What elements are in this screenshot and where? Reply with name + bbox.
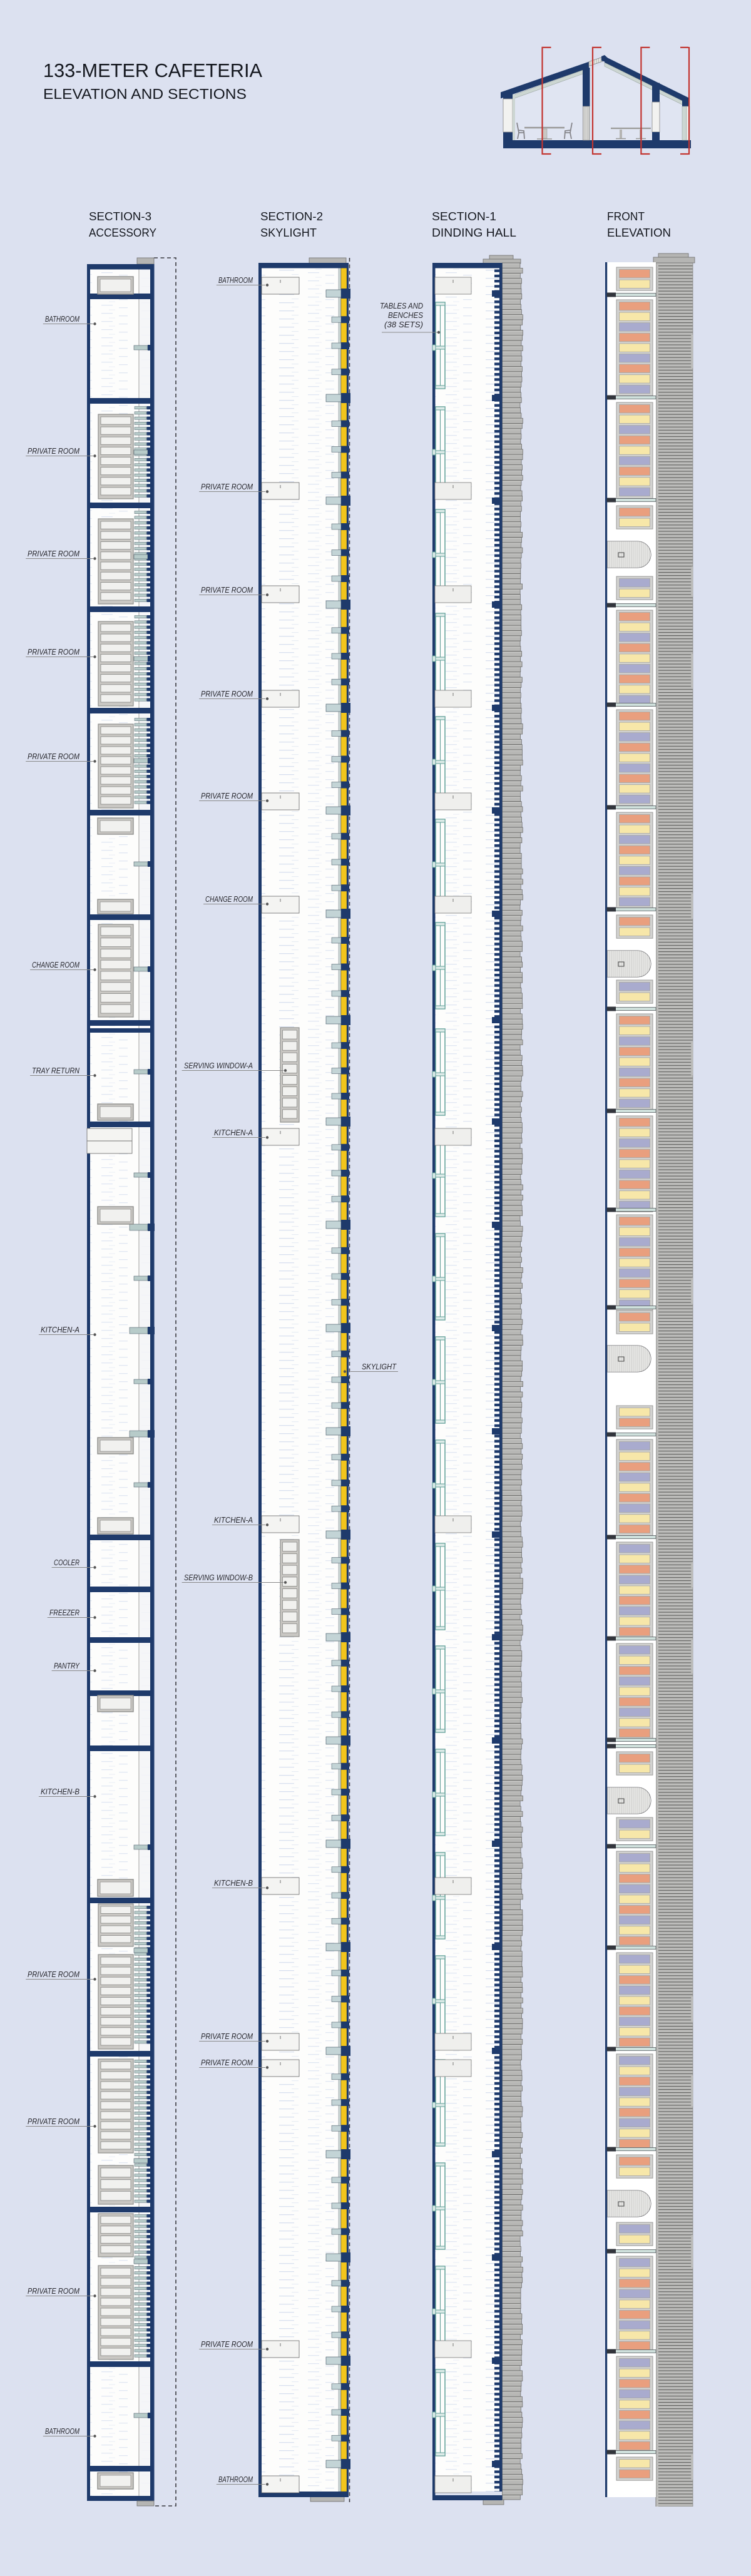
svg-text:PRIVATE ROOM: PRIVATE ROOM — [201, 791, 253, 800]
svg-text:TRAY RETURN: TRAY RETURN — [32, 1066, 80, 1075]
svg-text:CHANGE ROOM: CHANGE ROOM — [32, 960, 79, 969]
svg-text:ELEVATION AND SECTIONS: ELEVATION AND SECTIONS — [43, 86, 247, 102]
svg-text:PRIVATE ROOM: PRIVATE ROOM — [28, 647, 79, 657]
svg-text:SERVING WINDOW-B: SERVING WINDOW-B — [184, 1573, 253, 1582]
svg-text:BENCHES: BENCHES — [388, 310, 423, 320]
svg-text:PRIVATE ROOM: PRIVATE ROOM — [201, 2058, 253, 2067]
svg-text:(38 SETS): (38 SETS) — [384, 320, 423, 329]
svg-text:PRIVATE ROOM: PRIVATE ROOM — [201, 689, 253, 698]
svg-text:PRIVATE ROOM: PRIVATE ROOM — [201, 482, 253, 491]
svg-text:ELEVATION: ELEVATION — [607, 226, 671, 239]
svg-text:PRIVATE ROOM: PRIVATE ROOM — [201, 2339, 253, 2349]
svg-text:SECTION-3: SECTION-3 — [89, 210, 151, 223]
svg-text:KITCHEN-B: KITCHEN-B — [41, 1787, 79, 1796]
svg-text:133-METER CAFETERIA: 133-METER CAFETERIA — [43, 59, 262, 81]
svg-text:SERVING WINDOW-A: SERVING WINDOW-A — [184, 1061, 253, 1070]
svg-text:DINDING HALL: DINDING HALL — [432, 226, 516, 239]
svg-text:PRIVATE ROOM: PRIVATE ROOM — [201, 2032, 253, 2041]
svg-text:SKYLIGHT: SKYLIGHT — [260, 226, 317, 239]
svg-text:PRIVATE ROOM: PRIVATE ROOM — [28, 2286, 79, 2296]
svg-text:FREEZER: FREEZER — [49, 1608, 79, 1617]
svg-text:FRONT: FRONT — [607, 210, 645, 223]
svg-text:PRIVATE ROOM: PRIVATE ROOM — [28, 446, 79, 456]
svg-text:SECTION-2: SECTION-2 — [260, 210, 323, 223]
svg-text:BATHROOM: BATHROOM — [45, 2426, 79, 2436]
svg-text:BATHROOM: BATHROOM — [218, 275, 253, 285]
svg-text:KITCHEN-A: KITCHEN-A — [41, 1325, 79, 1334]
svg-text:KITCHEN-A: KITCHEN-A — [214, 1128, 253, 1137]
svg-text:BATHROOM: BATHROOM — [45, 314, 79, 324]
svg-text:KITCHEN-B: KITCHEN-B — [214, 1878, 253, 1888]
svg-text:BATHROOM: BATHROOM — [218, 2475, 253, 2484]
svg-text:KITCHEN-A: KITCHEN-A — [214, 1515, 253, 1525]
svg-text:ACCESSORY: ACCESSORY — [89, 226, 156, 239]
svg-text:PRIVATE ROOM: PRIVATE ROOM — [201, 585, 253, 595]
svg-text:COOLER: COOLER — [54, 1558, 79, 1567]
svg-text:PRIVATE ROOM: PRIVATE ROOM — [28, 1970, 79, 1979]
svg-text:PRIVATE ROOM: PRIVATE ROOM — [28, 752, 79, 761]
svg-text:PANTRY: PANTRY — [54, 1661, 80, 1670]
svg-text:CHANGE ROOM: CHANGE ROOM — [205, 894, 253, 904]
svg-text:SECTION-1: SECTION-1 — [432, 210, 496, 223]
svg-text:SKYLIGHT: SKYLIGHT — [362, 1362, 397, 1371]
svg-text:TABLES AND: TABLES AND — [380, 301, 423, 310]
svg-text:PRIVATE ROOM: PRIVATE ROOM — [28, 2117, 79, 2126]
svg-text:PRIVATE ROOM: PRIVATE ROOM — [28, 549, 79, 558]
